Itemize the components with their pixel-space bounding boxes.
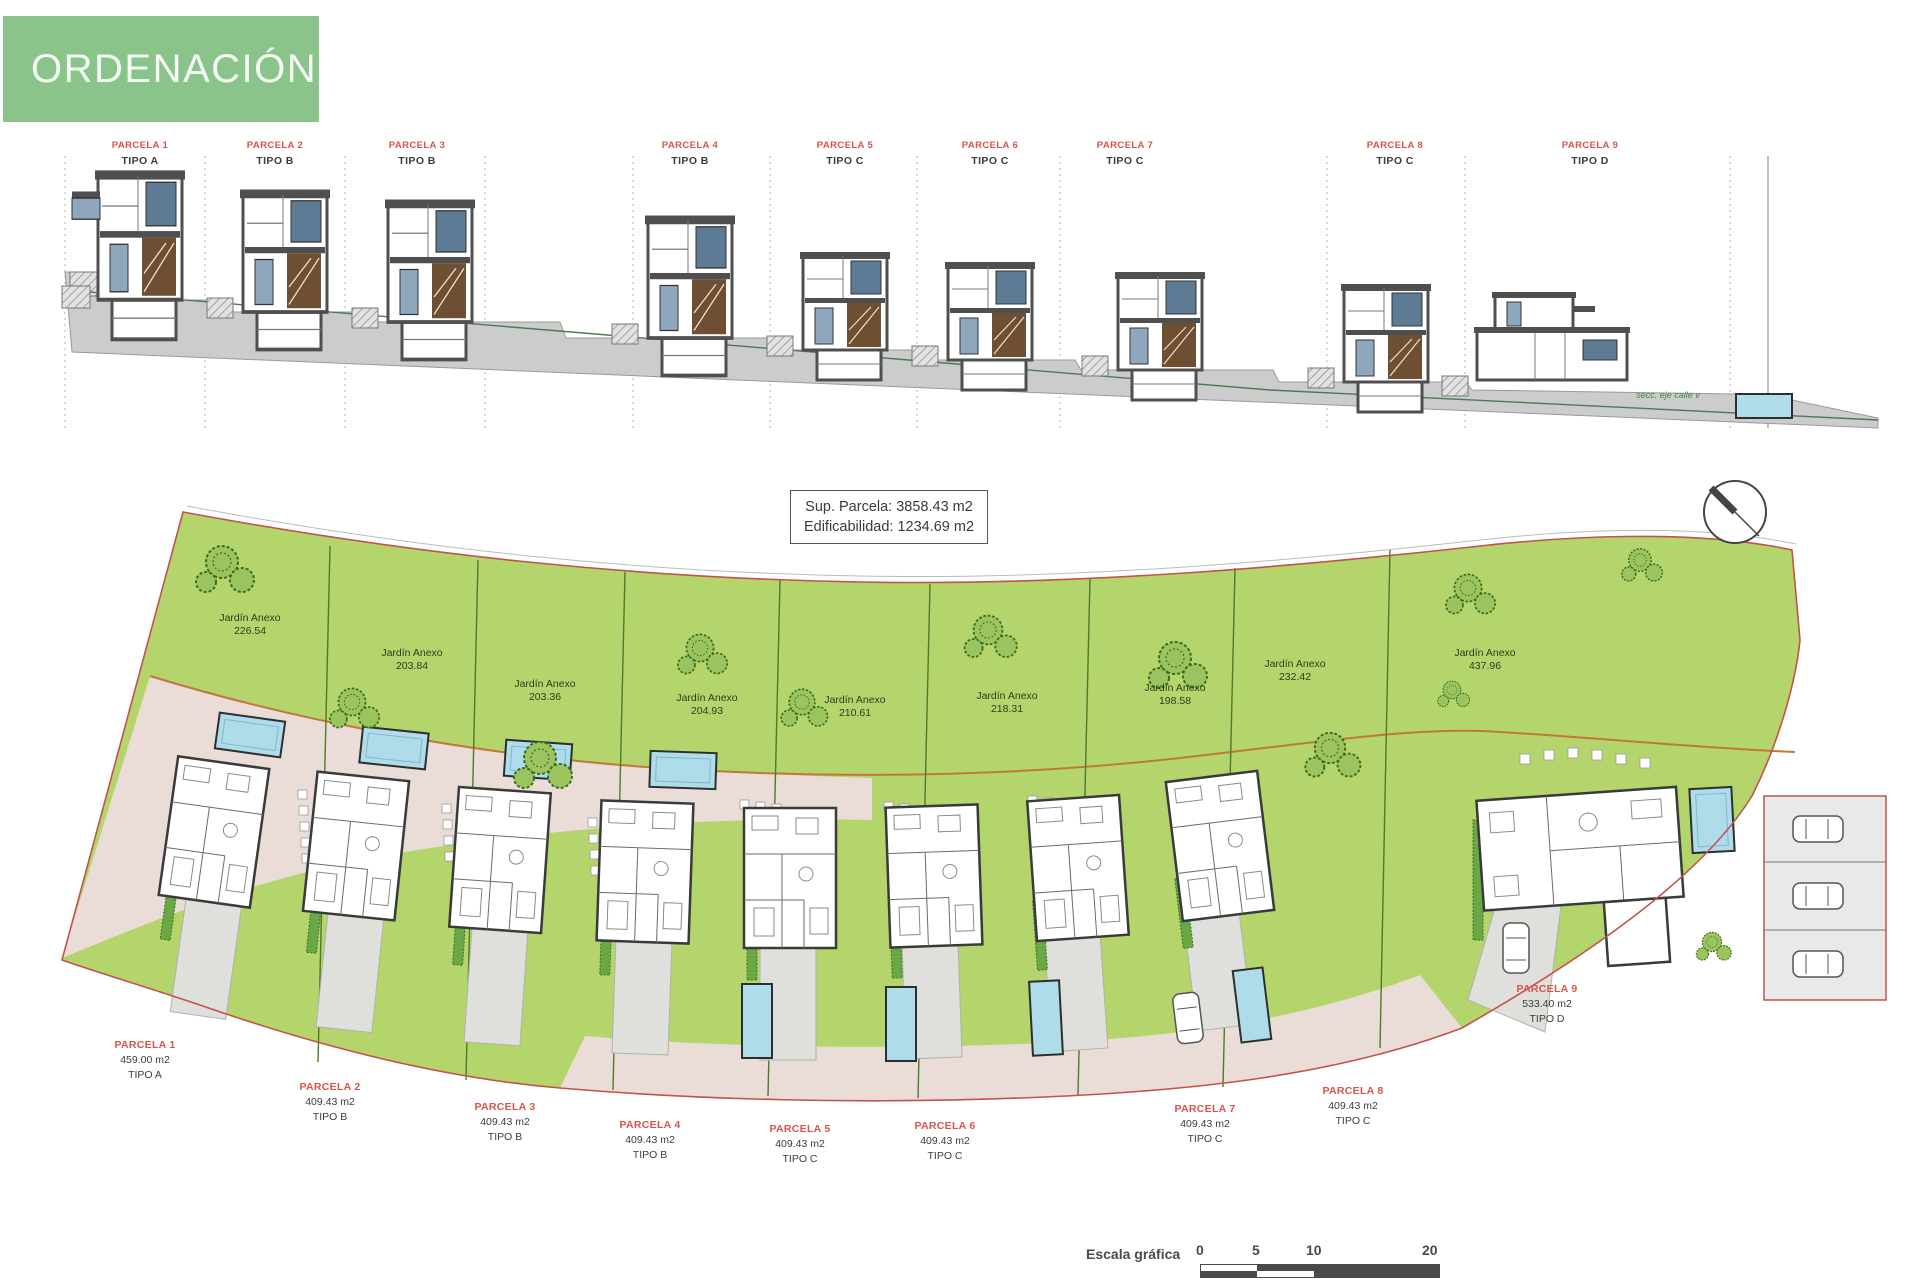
plan-house-3 [449, 787, 551, 933]
parcel-label-9: PARCELA 9533.40 m2TIPO D [1482, 982, 1612, 1027]
title-banner: ORDENACIÓN [3, 16, 319, 122]
elevation-section [62, 156, 1878, 428]
scale-bar [1200, 1264, 1440, 1278]
parking-area [1764, 796, 1886, 1000]
scale-tick-5: 5 [1252, 1242, 1260, 1258]
buildability-value: Edificabilidad: 1234.69 m2 [791, 517, 987, 537]
parcel-label-3: PARCELA 3409.43 m2TIPO B [440, 1100, 570, 1145]
garden-label-1: Jardín Anexo226.54 [175, 612, 325, 638]
elev-label-parcela-5: PARCELA 5TIPO C [775, 140, 915, 167]
elev-label-parcela-7: PARCELA 7TIPO C [1055, 140, 1195, 167]
plan-house-6 [886, 804, 983, 947]
garden-label-5: Jardín Anexo210.61 [780, 694, 930, 720]
parcel-label-5: PARCELA 5409.43 m2TIPO C [735, 1122, 865, 1167]
elev-label-parcela-4: PARCELA 4TIPO B [620, 140, 760, 167]
site-area-value: Sup. Parcela: 3858.43 m2 [791, 497, 987, 517]
scale-tick-10: 10 [1306, 1242, 1322, 1258]
scale-tick-20: 20 [1422, 1242, 1438, 1258]
parcel-label-1: PARCELA 1459.00 m2TIPO A [80, 1038, 210, 1083]
section-axis-note: secc. eje calle v [1598, 390, 1738, 400]
site-plan [62, 481, 1886, 1101]
garden-label-2: Jardín Anexo203.84 [337, 647, 487, 673]
parcel-label-7: PARCELA 7409.43 m2TIPO C [1140, 1102, 1270, 1147]
section-house-9 [1474, 292, 1630, 380]
plan-house-1 [159, 756, 270, 907]
elev-label-parcela-6: PARCELA 6TIPO C [920, 140, 1060, 167]
scale-bar-label: Escala gráfica [1086, 1246, 1180, 1262]
garden-label-6: Jardín Anexo218.31 [932, 690, 1082, 716]
garden-label-7: Jardín Anexo198.58 [1100, 682, 1250, 708]
page-title: ORDENACIÓN [3, 47, 317, 92]
elev-label-parcela-1: PARCELA 1TIPO A [70, 140, 210, 167]
north-arrow-icon [1704, 481, 1766, 543]
parcel-label-6: PARCELA 6409.43 m2TIPO C [880, 1119, 1010, 1164]
garden-label-8: Jardín Anexo232.42 [1220, 658, 1370, 684]
elev-label-parcela-8: PARCELA 8TIPO C [1325, 140, 1465, 167]
parcel-label-8: PARCELA 8409.43 m2TIPO C [1288, 1084, 1418, 1129]
plan-house-4 [597, 800, 694, 943]
elev-label-parcela-3: PARCELA 3TIPO B [347, 140, 487, 167]
plan-house-8 [1166, 771, 1274, 921]
parcel-label-2: PARCELA 2409.43 m2TIPO B [265, 1080, 395, 1125]
ordenacion-sheet: ORDENACIÓN PARCELA 1TIPO A PARCELA 2TIPO… [0, 0, 1920, 1280]
site-info-box: Sup. Parcela: 3858.43 m2 Edificabilidad:… [790, 490, 988, 544]
garden-label-9: Jardín Anexo437.96 [1410, 647, 1560, 673]
garden-label-4: Jardín Anexo204.93 [632, 692, 782, 718]
plan-house-5 [744, 808, 836, 948]
section-pool [1736, 394, 1792, 418]
garden-label-3: Jardín Anexo203.36 [470, 678, 620, 704]
elev-label-parcela-9: PARCELA 9TIPO D [1520, 140, 1660, 167]
scale-tick-0: 0 [1196, 1242, 1204, 1258]
elev-label-parcela-2: PARCELA 2TIPO B [205, 140, 345, 167]
parcel-label-4: PARCELA 4409.43 m2TIPO B [585, 1118, 715, 1163]
plan-house-7 [1027, 795, 1129, 941]
plan-house-2 [303, 772, 409, 921]
